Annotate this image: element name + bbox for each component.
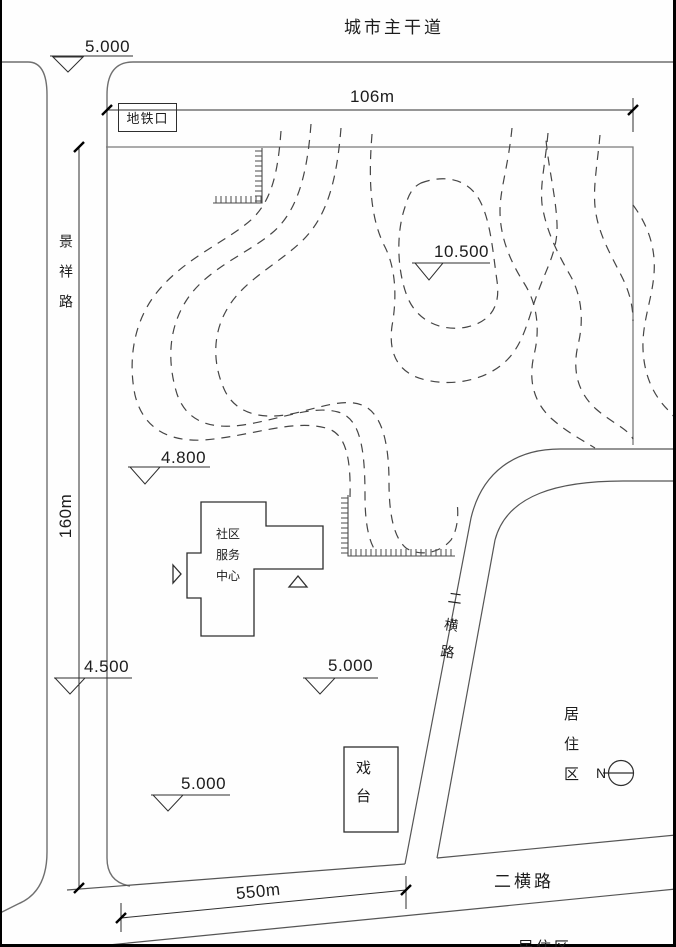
elevation-marker-south [151,795,230,811]
metro-entrance-label: 地铁口 [118,103,177,132]
bottom-road-erhenglu [67,835,676,947]
contour-line [633,205,676,420]
slope-hatch-ticks [216,151,451,556]
door-arrow-icon [173,565,181,583]
community-center-label: 社区服务中心 [214,524,242,587]
contour-line [171,124,377,553]
elevation-value-southwest: 4.500 [84,657,129,677]
community-center-building [173,502,323,636]
bottom-road-label-erhenglu: 二横路 [494,867,554,892]
contour-line [542,133,633,439]
entrance-triangle-icon [289,576,307,587]
north-symbol-icon [603,761,634,786]
elevation-value-south: 5.000 [181,774,226,794]
elevation-value-center: 5.000 [328,656,373,676]
elevation-marker-peak [412,263,490,280]
residential-area-east-label: 居住区 [560,706,581,796]
dim-value-106m: 106m [350,87,395,107]
site-plan-drawing: 城市主干道 5.000 106m 地铁口 景祥路 160m 10.500 4.8… [0,0,676,947]
residential-area-south-label: 居住区 [518,936,572,947]
contour-line [216,128,458,553]
elevation-value-peak: 10.500 [434,242,489,262]
elevation-marker-west [128,467,210,484]
contour-line [132,131,350,497]
stage-label: 戏台 [352,760,373,816]
frame-left [0,0,2,947]
north-letter: N [596,765,606,781]
elevation-value-west: 4.800 [161,448,206,468]
elevation-value-top-left: 5.000 [85,37,130,57]
elevation-marker-center [303,678,378,694]
contour-lines [132,124,676,553]
site-plan-linework [0,0,676,947]
contour-line [595,135,633,321]
elevation-marker-symbols [50,56,490,811]
slope-hatch-lines [213,148,455,556]
metro-entrance-text: 地铁口 [126,108,168,127]
dim-value-160m: 160m [56,491,76,541]
elevation-marker-southwest [54,678,132,694]
contour-line [500,128,595,448]
main-road-label: 城市主干道 [344,13,444,38]
west-road-label-jingxianglu: 景祥路 [56,234,76,324]
